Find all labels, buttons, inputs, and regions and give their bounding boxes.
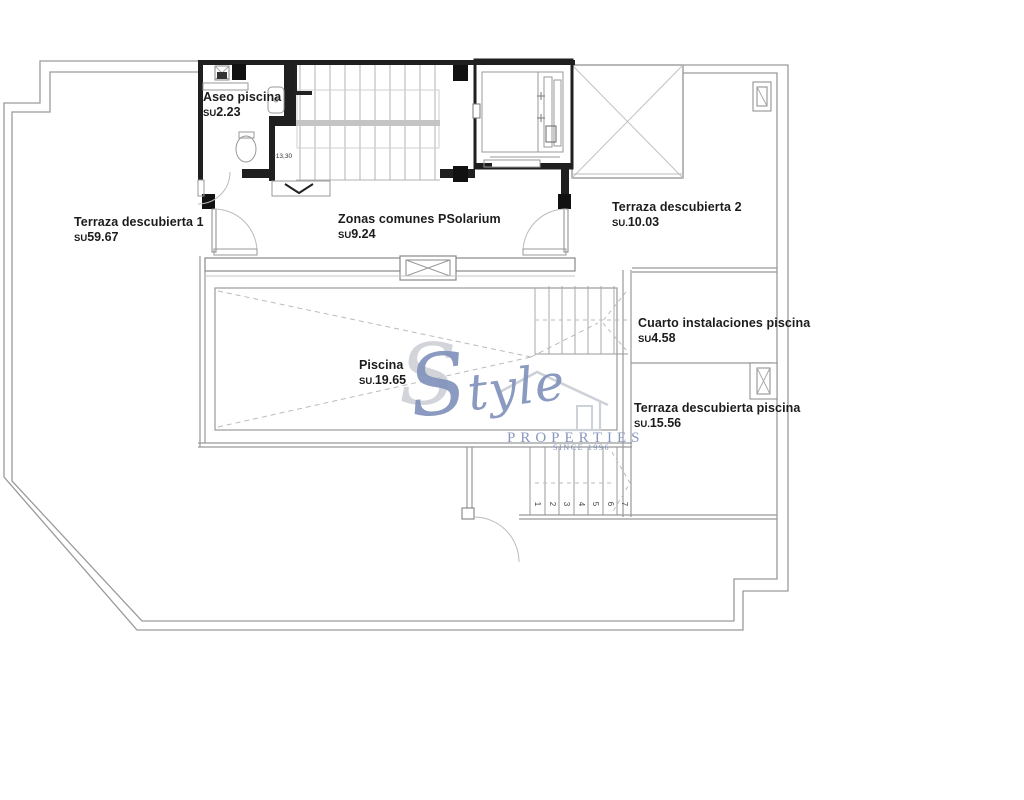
stair-start-tick [294, 91, 312, 95]
room-label-zonas-comunes: Zonas comunes PSolarium SU9.24 [338, 212, 501, 242]
pool-deck [198, 256, 632, 447]
room-label-terraza-1: Terraza descubierta 1 SU59.67 [74, 215, 204, 245]
room-label-terraza-2: Terraza descubierta 2 SU.10.03 [612, 200, 742, 230]
columns [202, 64, 571, 209]
elevator-handle [473, 104, 480, 118]
plan-boundary [4, 61, 788, 630]
pool-depth-line [218, 291, 531, 357]
floor-plan-page: 1 2 3 4 5 6 7 Aseo piscina SU2.23 Terraz… [0, 0, 1024, 800]
column [453, 65, 468, 81]
bench [203, 83, 248, 90]
skylight-shaft [572, 65, 683, 178]
room-label-terraza-piscina: Terraza descubierta piscina SU.15.56 [634, 401, 800, 431]
lower-corridor [462, 447, 777, 562]
room-label-piscina: Piscina SU.19.65 [359, 358, 406, 388]
level-mark: +13,30 [272, 153, 292, 160]
step-number: 5 [591, 502, 600, 507]
door-jamb [462, 508, 474, 519]
step-number: 4 [577, 502, 586, 507]
column [558, 194, 571, 209]
step-number: 3 [562, 502, 571, 507]
step-number: 1 [533, 502, 542, 507]
pool-steps [535, 286, 628, 354]
door-sill [523, 249, 566, 255]
toilet [236, 136, 256, 162]
elevator-door-sill [484, 160, 540, 167]
door-arc [523, 209, 566, 252]
room-label-cuarto-instalaciones: Cuarto instalaciones piscina SU4.58 [638, 316, 810, 346]
step-number: 2 [548, 502, 557, 507]
door-leaf [212, 209, 216, 252]
swimming-pool [215, 286, 628, 430]
step-number: 6 [606, 502, 615, 507]
main-staircase [272, 63, 440, 196]
door-sill [214, 249, 257, 255]
room-label-aseo-piscina: Aseo piscina SU2.23 [203, 90, 281, 120]
wall-vents [750, 82, 777, 399]
column [232, 64, 246, 80]
lower-staircase: 1 2 3 4 5 6 7 [530, 447, 630, 515]
stair-landing-bar [296, 120, 440, 126]
step-number: 7 [620, 502, 629, 507]
door-arc [474, 517, 519, 562]
stair-lower-landing [272, 181, 330, 196]
column [453, 166, 468, 182]
floor-plan-drawing: 1 2 3 4 5 6 7 [0, 0, 1024, 800]
stair-step-numbers: 1 2 3 4 5 6 7 [533, 502, 629, 507]
door-leaf [564, 209, 568, 252]
elevator [473, 60, 572, 168]
door-arc [214, 209, 257, 252]
core-walls [198, 60, 575, 198]
